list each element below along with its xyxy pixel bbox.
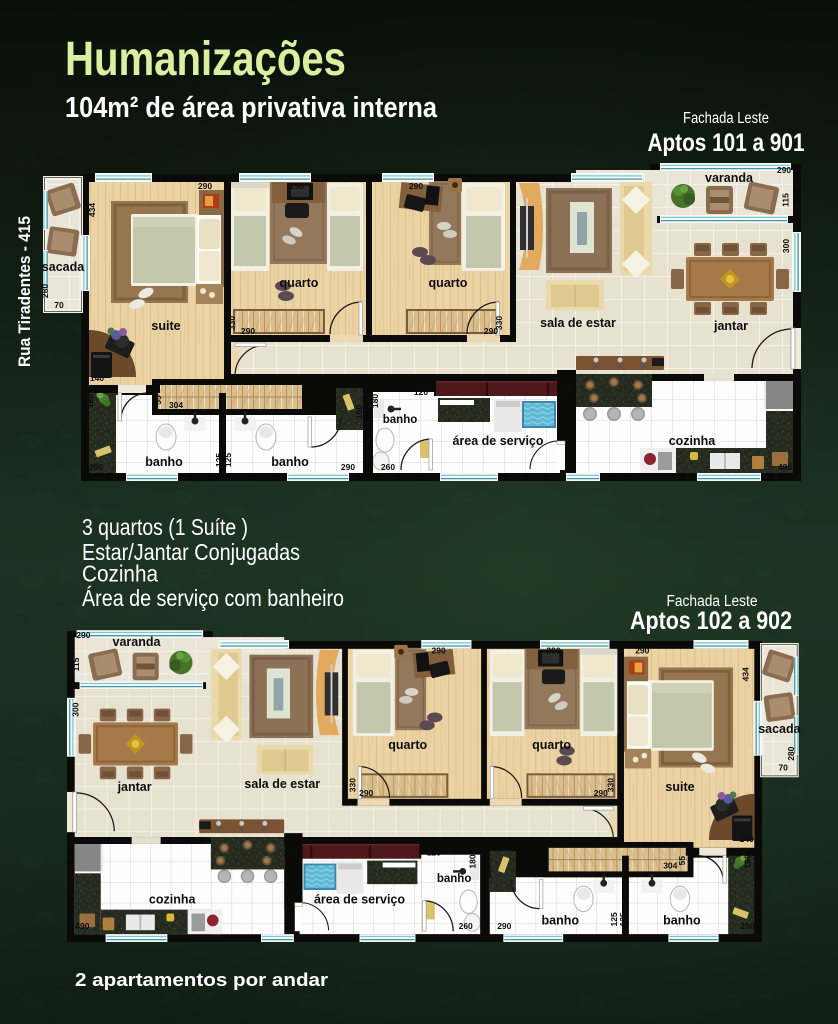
svg-text:70: 70 (54, 300, 64, 310)
svg-text:125: 125 (223, 453, 233, 467)
svg-text:115: 115 (71, 657, 81, 671)
svg-text:55: 55 (153, 395, 163, 405)
svg-text:330: 330 (348, 778, 358, 792)
svg-text:suite: suite (151, 319, 180, 333)
svg-text:115: 115 (781, 193, 791, 207)
svg-text:área de serviço: área de serviço (452, 434, 543, 448)
svg-text:290: 290 (241, 326, 255, 336)
svg-text:banho: banho (271, 455, 309, 469)
svg-text:cozinha: cozinha (149, 893, 197, 907)
svg-text:125: 125 (618, 912, 628, 926)
svg-text:290: 290 (89, 462, 103, 472)
svg-text:434: 434 (741, 667, 751, 681)
svg-text:quarto: quarto (388, 738, 427, 752)
svg-text:290: 290 (198, 181, 212, 191)
svg-text:290: 290 (546, 646, 560, 656)
svg-text:160: 160 (354, 405, 364, 419)
svg-text:180: 180 (85, 394, 95, 408)
svg-text:banho: banho (145, 455, 183, 469)
svg-text:jantar: jantar (117, 780, 152, 794)
svg-text:104m² de área privativa intern: 104m² de área privativa interna (65, 92, 438, 124)
svg-text:434: 434 (87, 203, 97, 217)
svg-text:140: 140 (740, 834, 754, 844)
svg-text:suite: suite (665, 780, 694, 794)
svg-text:160: 160 (483, 865, 493, 879)
svg-text:210: 210 (562, 383, 572, 397)
svg-text:área de serviço: área de serviço (314, 893, 405, 907)
svg-text:260: 260 (381, 462, 395, 472)
svg-text:Rua Tiradentes - 415: Rua Tiradentes - 415 (15, 216, 34, 367)
svg-text:sacada: sacada (42, 260, 85, 274)
svg-text:140: 140 (90, 373, 104, 383)
svg-text:quarto: quarto (532, 738, 571, 752)
svg-text:290: 290 (341, 462, 355, 472)
svg-text:280: 280 (786, 746, 796, 760)
svg-text:290: 290 (359, 788, 373, 798)
svg-text:70: 70 (778, 762, 788, 772)
svg-text:2 apartamentos por andar: 2 apartamentos por andar (75, 969, 328, 990)
svg-text:290: 290 (76, 630, 90, 640)
svg-text:125: 125 (609, 912, 619, 926)
svg-text:jantar: jantar (713, 319, 748, 333)
svg-text:sacada: sacada (758, 722, 801, 736)
svg-text:cozinha: cozinha (669, 434, 717, 448)
svg-text:490: 490 (778, 462, 792, 472)
svg-text:banho: banho (542, 913, 580, 927)
svg-text:290: 290 (484, 326, 498, 336)
svg-text:banho: banho (437, 873, 472, 885)
svg-text:sala de estar: sala de estar (540, 316, 616, 330)
svg-text:banho: banho (383, 414, 418, 426)
svg-text:260: 260 (459, 921, 473, 931)
svg-text:290: 290 (432, 646, 446, 656)
svg-text:quarto: quarto (280, 276, 319, 290)
svg-text:290: 290 (594, 788, 608, 798)
svg-text:290: 290 (409, 181, 423, 191)
svg-text:Fachada Leste: Fachada Leste (683, 110, 769, 127)
svg-text:180: 180 (467, 854, 477, 868)
svg-text:180: 180 (742, 854, 752, 868)
svg-text:304: 304 (663, 860, 677, 870)
svg-text:varanda: varanda (705, 171, 754, 185)
svg-text:300: 300 (781, 239, 791, 253)
svg-text:120: 120 (427, 848, 441, 858)
svg-text:290: 290 (497, 921, 511, 931)
svg-text:Humanizações: Humanizações (65, 33, 346, 86)
svg-text:290: 290 (777, 165, 791, 175)
svg-text:280: 280 (40, 284, 50, 298)
svg-text:varanda: varanda (113, 635, 162, 649)
svg-text:Aptos 101 a 901: Aptos 101 a 901 (648, 129, 805, 157)
svg-text:304: 304 (169, 400, 183, 410)
svg-text:120: 120 (414, 387, 428, 397)
svg-text:290: 290 (635, 646, 649, 656)
svg-text:490: 490 (75, 921, 89, 931)
svg-text:180: 180 (370, 394, 380, 408)
svg-text:55: 55 (677, 856, 687, 866)
svg-text:Área de serviço com banheiro: Área de serviço com banheiro (82, 585, 344, 611)
svg-text:290: 290 (740, 921, 754, 931)
svg-text:Aptos 102 a 902: Aptos 102 a 902 (630, 607, 792, 635)
svg-text:banho: banho (663, 913, 701, 927)
svg-text:210: 210 (282, 843, 292, 857)
svg-text:3 quartos (1 Suíte ): 3 quartos (1 Suíte ) (82, 514, 248, 540)
svg-text:300: 300 (71, 702, 81, 716)
svg-text:330: 330 (227, 316, 237, 330)
svg-text:Cozinha: Cozinha (82, 561, 158, 587)
svg-text:290: 290 (290, 181, 304, 191)
svg-text:sala de estar: sala de estar (244, 777, 320, 791)
svg-text:quarto: quarto (429, 276, 468, 290)
